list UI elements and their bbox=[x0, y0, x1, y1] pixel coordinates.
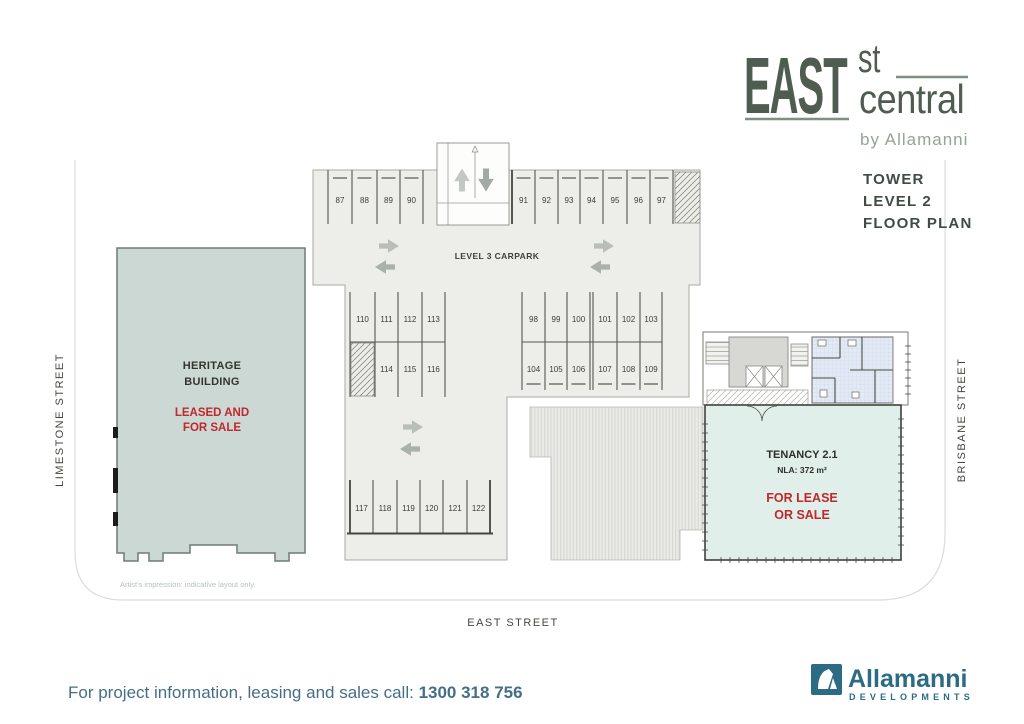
plan-title-line1: TOWER bbox=[863, 171, 925, 188]
brand-name-primary: EAST bbox=[744, 42, 847, 131]
lift-lobby bbox=[707, 390, 808, 405]
stairs-left bbox=[706, 342, 730, 364]
plan-title-line3: FLOOR PLAN bbox=[863, 215, 973, 232]
hatched-zone-top-right bbox=[675, 172, 700, 223]
parking-bay-number: 108 bbox=[622, 365, 636, 374]
heritage-door-mark-3 bbox=[113, 512, 118, 526]
footer-contact-label: For project information, leasing and sal… bbox=[68, 683, 419, 702]
footer-phone-number: 1300 318 756 bbox=[419, 683, 523, 702]
parking-bay-number: 102 bbox=[622, 315, 636, 324]
parking-bay-number: 116 bbox=[427, 365, 440, 374]
heritage-status-line2: FOR SALE bbox=[183, 422, 241, 434]
heritage-name-line1: HERITAGE bbox=[183, 360, 241, 372]
parking-bay-number: 109 bbox=[644, 365, 658, 374]
carpark-ramp bbox=[437, 143, 509, 225]
parking-bay-number: 92 bbox=[542, 196, 551, 205]
parking-bay-number: 98 bbox=[529, 315, 538, 324]
parking-bay-number: 100 bbox=[572, 315, 586, 324]
brand-byline: by Allamanni bbox=[860, 130, 968, 149]
developer-division: DEVELOPMENTS bbox=[849, 692, 974, 702]
developer-logo: Allamanni DEVELOPMENTS bbox=[811, 664, 974, 702]
parking-bay-number: 114 bbox=[380, 365, 393, 374]
hatched-zone-mid-left bbox=[351, 343, 374, 396]
lower-roof-area bbox=[530, 407, 703, 560]
parking-bay-number: 93 bbox=[565, 196, 574, 205]
heritage-name-line2: BUILDING bbox=[184, 376, 240, 388]
lift-car-1 bbox=[746, 366, 763, 387]
parking-bay-number: 120 bbox=[425, 504, 439, 513]
parking-bay-number: 111 bbox=[380, 315, 393, 324]
heritage-status-line1: LEASED AND bbox=[175, 407, 249, 419]
tenancy-status-line2: OR SALE bbox=[774, 508, 830, 522]
parking-bay-number: 88 bbox=[360, 196, 369, 205]
tenancy-status-line1: FOR LEASE bbox=[766, 491, 838, 505]
parking-bay-number: 97 bbox=[657, 196, 666, 205]
carpark-area-label: LEVEL 3 CARPARK bbox=[455, 251, 540, 261]
parking-bay-number: 89 bbox=[384, 196, 393, 205]
parking-bay-number: 113 bbox=[427, 315, 440, 324]
tenancy-nla: NLA: 372 m² bbox=[777, 465, 827, 475]
developer-name: Allamanni bbox=[848, 665, 967, 693]
brand-name-st: st bbox=[858, 36, 881, 81]
parking-bay-number: 118 bbox=[379, 504, 392, 513]
parking-bay-number: 119 bbox=[402, 504, 415, 513]
parking-bay-number: 122 bbox=[472, 504, 486, 513]
street-label-east: EAST STREET bbox=[467, 617, 558, 629]
plan-title-line2: LEVEL 2 bbox=[863, 193, 932, 210]
parking-bay-number: 104 bbox=[527, 365, 541, 374]
parking-bay-number: 91 bbox=[519, 196, 528, 205]
parking-bay-number: 121 bbox=[448, 504, 462, 513]
heritage-outline bbox=[117, 248, 305, 561]
parking-bay-number: 107 bbox=[598, 365, 612, 374]
parking-bay-number: 110 bbox=[356, 315, 369, 324]
heritage-door-mark-2 bbox=[113, 468, 118, 493]
tenancy-name: TENANCY 2.1 bbox=[766, 449, 837, 461]
parking-bay-number: 115 bbox=[404, 365, 417, 374]
bathrooms bbox=[812, 337, 893, 403]
heritage-door-mark-1 bbox=[113, 427, 118, 438]
parking-bay-number: 87 bbox=[336, 196, 345, 205]
brand-name-secondary: central bbox=[859, 77, 964, 123]
parking-bay-number: 106 bbox=[572, 365, 586, 374]
parking-bay-number: 103 bbox=[644, 315, 658, 324]
plan-title: TOWER LEVEL 2 FLOOR PLAN bbox=[863, 171, 973, 232]
tower-core bbox=[703, 332, 908, 405]
parking-bay-number: 96 bbox=[634, 196, 643, 205]
brand-logo: EAST st central by Allamanni bbox=[744, 36, 968, 149]
floor-plan-canvas: 8788899091929394959697110111112113114115… bbox=[0, 0, 1024, 724]
disclaimer-text: Artist's impression: indicative layout o… bbox=[120, 580, 256, 589]
tenancy-outline bbox=[705, 405, 901, 560]
tenancy-area: TENANCY 2.1 NLA: 372 m² FOR LEASE OR SAL… bbox=[705, 405, 901, 560]
street-label-brisbane: BRISBANE STREET bbox=[956, 358, 968, 483]
lift-car-2 bbox=[765, 366, 782, 387]
street-label-limestone: LIMESTONE STREET bbox=[54, 353, 66, 487]
floor-plan-page: 8788899091929394959697110111112113114115… bbox=[0, 0, 1024, 724]
footer-contact: For project information, leasing and sal… bbox=[68, 683, 523, 702]
parking-bay-number: 94 bbox=[587, 196, 596, 205]
parking-bay-number: 90 bbox=[407, 196, 416, 205]
parking-bay-number: 99 bbox=[552, 315, 561, 324]
stairs-right bbox=[791, 344, 808, 366]
parking-bay-number: 105 bbox=[549, 365, 563, 374]
parking-bay-number: 112 bbox=[404, 315, 417, 324]
parking-bay-number: 95 bbox=[611, 196, 620, 205]
parking-bay-number: 117 bbox=[355, 504, 368, 513]
heritage-building: HERITAGE BUILDING LEASED AND FOR SALE bbox=[113, 248, 305, 561]
parking-bay-number: 101 bbox=[598, 315, 612, 324]
